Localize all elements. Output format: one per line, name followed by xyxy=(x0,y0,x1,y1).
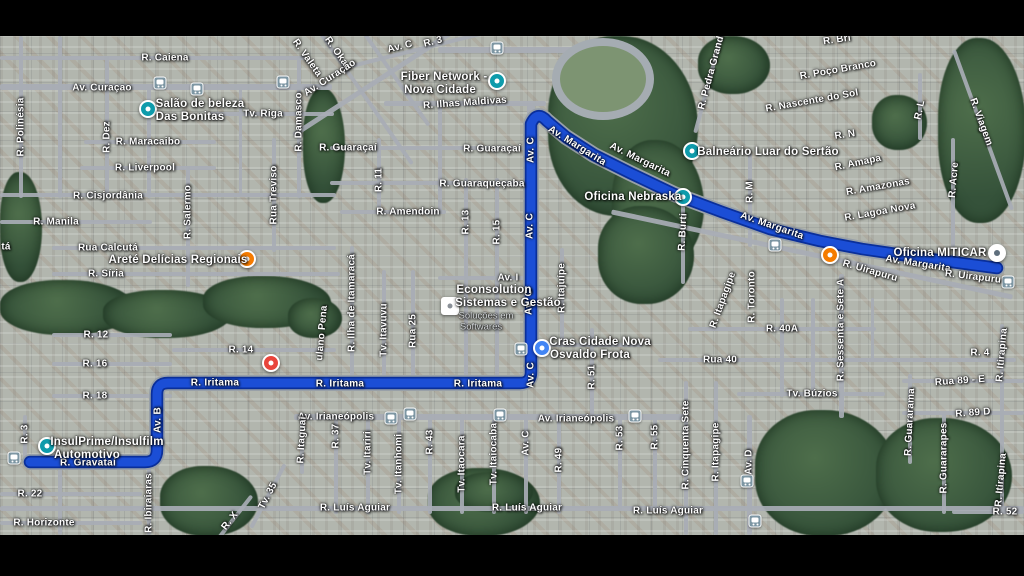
balneario-poi[interactable] xyxy=(683,142,701,160)
satellite-map[interactable]: R. CaienaAv. CuraçaoTv. RigaR. Maracaibo… xyxy=(0,0,1024,576)
screenshot-stage: R. CaienaAv. CuraçaoTv. RigaR. Maracaibo… xyxy=(0,0,1024,576)
bus-stop-icon[interactable] xyxy=(741,475,754,488)
bus-stop-icon[interactable] xyxy=(629,410,642,423)
route-border xyxy=(30,116,997,462)
poi-glyph-icon xyxy=(146,107,151,112)
bus-stop-icon[interactable] xyxy=(1002,276,1015,289)
bus-stop-icon[interactable] xyxy=(515,343,528,356)
bus-stop-icon[interactable] xyxy=(404,408,417,421)
route-polyline[interactable] xyxy=(30,116,997,462)
fiber-network-poi[interactable] xyxy=(488,72,506,90)
oficina-nebraska-poi[interactable] xyxy=(674,188,692,206)
bus-stop-icon[interactable] xyxy=(749,515,762,528)
bus-stop-icon[interactable] xyxy=(154,77,167,90)
poi-glyph-icon xyxy=(269,361,274,366)
bus-stop-icon[interactable] xyxy=(385,412,398,425)
bus-stop-icon[interactable] xyxy=(277,76,290,89)
poi-glyph-icon xyxy=(828,253,833,258)
bus-stop-icon[interactable] xyxy=(494,409,507,422)
route-underlying-road xyxy=(30,116,997,462)
letterbox-top xyxy=(0,0,1024,36)
bus-stop-icon[interactable] xyxy=(191,83,204,96)
poi-glyph-icon xyxy=(540,346,545,351)
oficina-miticar-poi[interactable] xyxy=(988,244,1006,262)
poi-glyph-icon xyxy=(495,79,500,84)
bus-stop-icon[interactable] xyxy=(769,239,782,252)
cras-cidade-nova-poi[interactable] xyxy=(533,339,551,357)
salao-de-beleza-poi[interactable] xyxy=(139,100,157,118)
health-poi[interactable] xyxy=(262,354,280,372)
poi-glyph-icon xyxy=(994,250,1000,256)
arete-delicias-poi[interactable] xyxy=(238,250,256,268)
letterbox-bottom xyxy=(0,535,1024,576)
poi-glyph-icon xyxy=(245,257,250,262)
poi-glyph-icon xyxy=(681,195,686,200)
poi-glyph-icon xyxy=(690,149,695,154)
poi-glyph-icon xyxy=(448,304,453,309)
bus-stop-icon[interactable] xyxy=(8,452,21,465)
insulprime-poi[interactable] xyxy=(38,437,56,455)
econsolution-poi[interactable] xyxy=(441,297,459,315)
food-poi[interactable] xyxy=(821,246,839,264)
bus-stop-icon[interactable] xyxy=(491,42,504,55)
poi-glyph-icon xyxy=(45,444,50,449)
